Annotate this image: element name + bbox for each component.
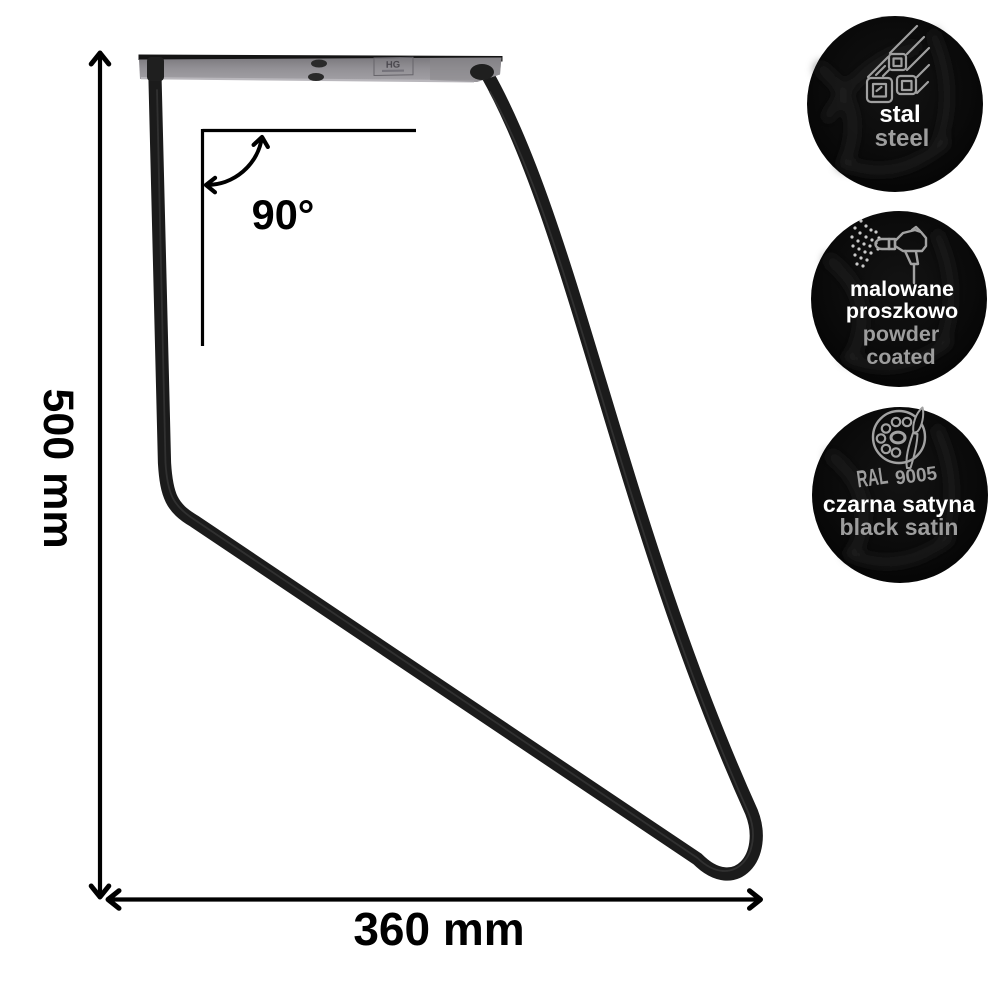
svg-text:90°: 90° <box>252 191 315 238</box>
svg-text:500 mm: 500 mm <box>34 388 82 548</box>
svg-text:black satin: black satin <box>840 514 959 540</box>
svg-text:malowane: malowane <box>850 277 954 301</box>
svg-text:powder: powder <box>863 322 940 346</box>
svg-text:HG: HG <box>386 60 400 71</box>
svg-text:360 mm: 360 mm <box>353 903 524 955</box>
svg-text:steel: steel <box>875 125 930 152</box>
svg-text:coated: coated <box>866 345 935 369</box>
svg-text:proszkowo: proszkowo <box>846 299 958 323</box>
svg-text:stal: stal <box>879 101 920 128</box>
svg-text:RAL: RAL <box>855 462 889 493</box>
